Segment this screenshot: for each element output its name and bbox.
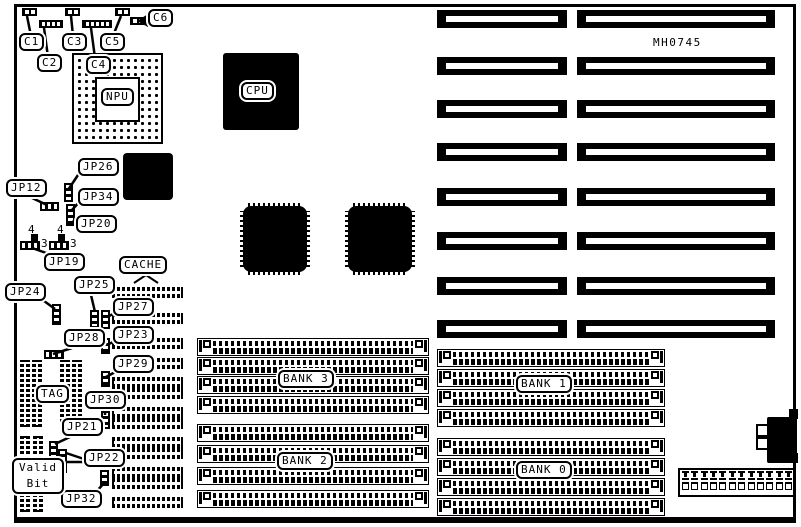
callout-jp22: JP22 [84,449,125,467]
bank3-label: BANK 3 [278,370,334,388]
motherboard-diagram: NPU CPU 4 4 3 3 [0,0,801,527]
bank0-label: BANK 0 [516,461,572,479]
cache-label: CACHE [119,256,167,274]
tag-label: TAG [36,385,69,403]
callout-jp20: JP20 [76,215,117,233]
callout-c1: C1 [19,33,44,51]
callout-jp27: JP27 [113,298,154,316]
callout-c6: C6 [148,9,173,27]
callout-jp19: JP19 [44,253,85,271]
bank1-label: BANK 1 [516,375,572,393]
callout-c3: C3 [62,33,87,51]
bank2-label: BANK 2 [277,452,333,470]
callout-jp30: JP30 [85,391,126,409]
valid-bit-line2: Bit [17,476,59,492]
callout-jp28: JP28 [64,329,105,347]
callout-jp12: JP12 [6,179,47,197]
callout-c2: C2 [37,54,62,72]
callout-jp21: JP21 [62,418,103,436]
valid-bit-line1: Valid [17,460,59,476]
cpu-label: CPU [241,82,274,100]
callout-jp26: JP26 [78,158,119,176]
callout-c5: C5 [100,33,125,51]
npu-label: NPU [101,88,134,106]
callout-jp25: JP25 [74,276,115,294]
callout-jp29: JP29 [113,355,154,373]
callout-c4: C4 [86,56,111,74]
callout-jp32: JP32 [61,490,102,508]
callout-jp23: JP23 [113,326,154,344]
valid-bit-label: Valid Bit [12,458,64,494]
callout-jp24: JP24 [5,283,46,301]
callout-jp34: JP34 [78,188,119,206]
